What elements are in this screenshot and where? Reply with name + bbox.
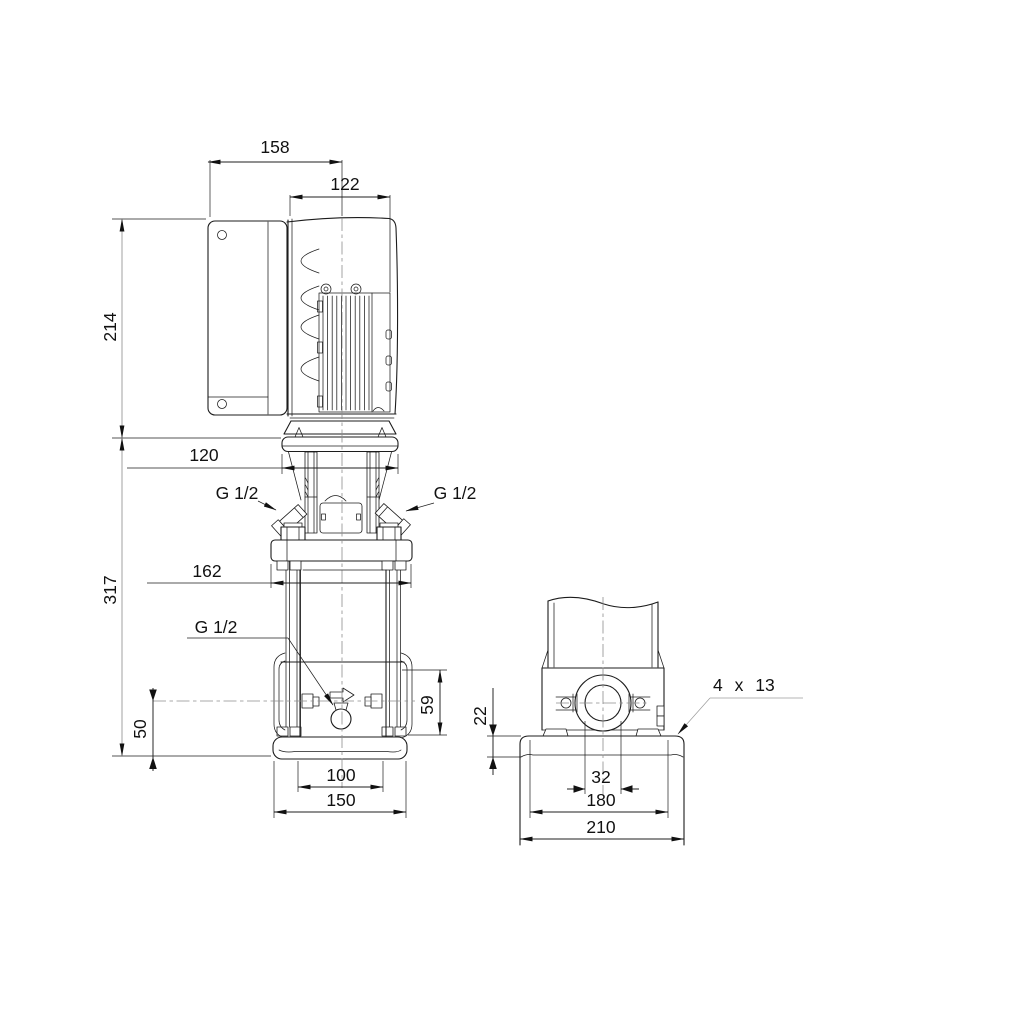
- foot: [543, 729, 568, 736]
- dim-210-label: 210: [586, 817, 615, 837]
- g12-left-label: G 1/2: [216, 483, 259, 503]
- dim-22: 22: [470, 688, 521, 775]
- label-g12-left: G 1/2: [216, 483, 276, 510]
- dim-22-label: 22: [470, 706, 490, 725]
- callout-base-holes: 4 x 13: [678, 675, 803, 734]
- dim-100: 100: [298, 761, 383, 792]
- dim-50-label: 50: [130, 719, 150, 739]
- dim-32-label: 32: [591, 767, 610, 787]
- dim-210: 210: [520, 817, 684, 839]
- motor-screws: [321, 284, 361, 294]
- pump-dimensional-drawing: 158 122 214 317 120 G 1/2: [0, 0, 1024, 1024]
- cooling-fins: [319, 293, 392, 412]
- dim-158: 158: [208, 137, 342, 217]
- dim-150-label: 150: [326, 790, 355, 810]
- label-g12-drain: G 1/2: [187, 617, 333, 705]
- dim-100-label: 100: [326, 765, 355, 785]
- base-holes-label: 4 x 13: [713, 675, 775, 695]
- dim-214-label: 214: [100, 312, 120, 341]
- g12-right-label: G 1/2: [434, 483, 477, 503]
- dim-317: 317: [100, 438, 122, 756]
- dim-59: 59: [402, 670, 447, 735]
- dim-317-label: 317: [100, 575, 120, 604]
- label-g12-right: G 1/2: [406, 483, 476, 511]
- dim-122-label: 122: [330, 174, 359, 194]
- shaft-seal-dome: [325, 496, 346, 502]
- motor-drive-unit: [208, 218, 398, 452]
- dim-59-label: 59: [417, 695, 437, 714]
- dim-180-label: 180: [586, 790, 615, 810]
- base-plate-side: [273, 737, 407, 759]
- dim-158-label: 158: [260, 137, 289, 157]
- motor-bell-flange: [282, 414, 398, 452]
- g12-drain-label: G 1/2: [195, 617, 238, 637]
- dim-122: 122: [290, 174, 390, 220]
- dim-162-label: 162: [192, 561, 221, 581]
- drain-plug: [331, 703, 351, 729]
- head-block: [320, 503, 362, 533]
- pump-column: [274, 561, 412, 738]
- control-box: [208, 221, 287, 415]
- foot: [636, 729, 661, 736]
- dimensional-drawing-page: 158 122 214 317 120 G 1/2: [0, 0, 1024, 1024]
- dimensions: 158 122 214 317 120 G 1/2: [100, 137, 803, 839]
- dim-50: 50: [130, 688, 157, 771]
- dim-120-label: 120: [189, 445, 218, 465]
- nameplate-clip: [657, 706, 664, 716]
- oval-flange: [271, 540, 412, 561]
